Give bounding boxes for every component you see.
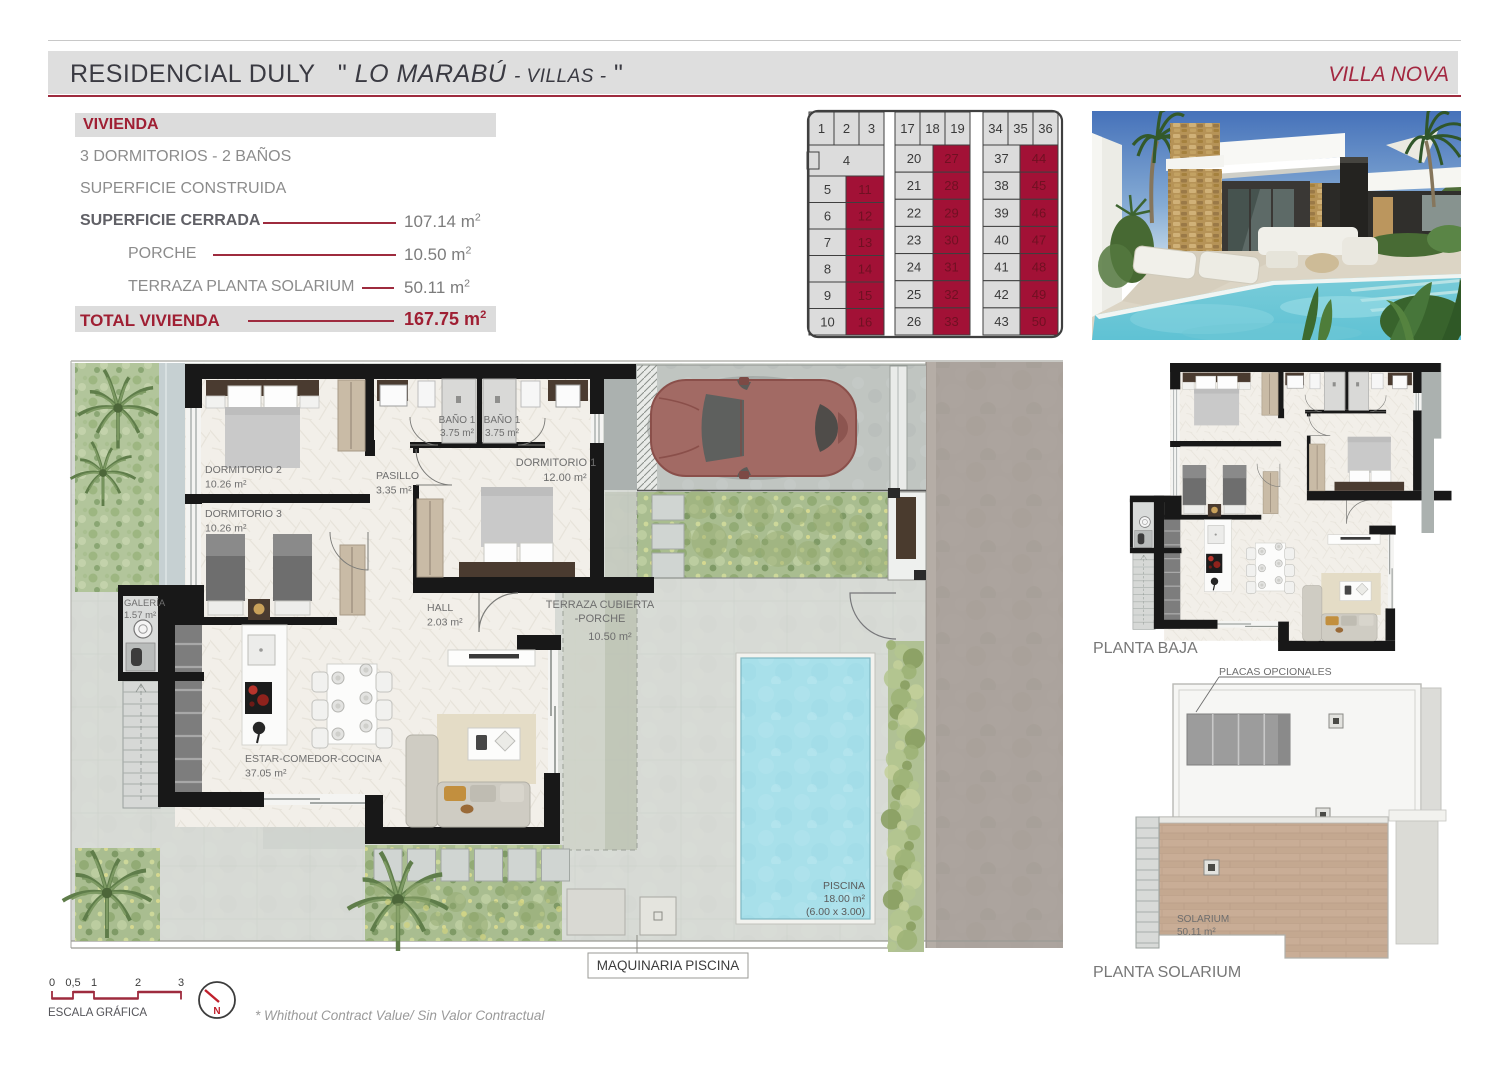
svg-text:0,5: 0,5 [65, 977, 80, 989]
svg-text:PLANTA BAJA: PLANTA BAJA [1093, 640, 1198, 657]
svg-text:3.35 m²: 3.35 m² [376, 485, 412, 497]
svg-text:DORMITORIO 2: DORMITORIO 2 [205, 464, 282, 476]
svg-text:11: 11 [858, 182, 872, 197]
svg-text:BAÑO 1: BAÑO 1 [484, 413, 521, 426]
svg-text:27: 27 [944, 151, 958, 166]
svg-text:10: 10 [820, 314, 834, 329]
svg-text:SOLARIUM: SOLARIUM [1177, 914, 1229, 925]
svg-text:10.26 m²: 10.26 m² [205, 479, 247, 491]
svg-text:12: 12 [858, 208, 872, 223]
svg-text:13: 13 [858, 235, 872, 250]
svg-text:38: 38 [994, 178, 1008, 193]
svg-text:1.57 m²: 1.57 m² [124, 610, 156, 621]
svg-text:30: 30 [944, 233, 958, 248]
svg-text:12.00 m²: 12.00 m² [543, 472, 587, 484]
svg-text:25: 25 [907, 287, 921, 302]
svg-text:34: 34 [988, 121, 1002, 136]
svg-text:MAQUINARIA PISCINA: MAQUINARIA PISCINA [597, 958, 740, 973]
svg-text:40: 40 [994, 233, 1008, 248]
svg-text:23: 23 [907, 233, 921, 248]
svg-text:0: 0 [49, 977, 55, 989]
svg-text:47: 47 [1032, 233, 1046, 248]
svg-text:45: 45 [1032, 178, 1046, 193]
svg-text:37.05 m²: 37.05 m² [245, 768, 287, 780]
svg-text:32: 32 [944, 287, 958, 302]
svg-text:43: 43 [994, 314, 1008, 329]
svg-text:PISCINA: PISCINA [823, 880, 865, 892]
svg-text:HALL: HALL [427, 602, 453, 614]
svg-text:10.26 m²: 10.26 m² [205, 523, 247, 535]
svg-text:37: 37 [994, 151, 1008, 166]
svg-text:2.03 m²: 2.03 m² [427, 617, 463, 629]
svg-text:3.75 m²: 3.75 m² [440, 428, 475, 439]
svg-text:DORMITORIO 1: DORMITORIO 1 [516, 457, 596, 469]
svg-text:15: 15 [858, 288, 872, 303]
svg-text:17: 17 [900, 121, 914, 136]
svg-text:1: 1 [91, 977, 97, 989]
svg-text:TERRAZA CUBIERTA: TERRAZA CUBIERTA [546, 599, 655, 611]
svg-text:39: 39 [994, 205, 1008, 220]
svg-text:35: 35 [1013, 121, 1027, 136]
svg-text:42: 42 [994, 287, 1008, 302]
svg-text:3: 3 [178, 977, 184, 989]
svg-text:31: 31 [944, 260, 958, 275]
svg-text:50.11 m²: 50.11 m² [1177, 927, 1216, 938]
svg-text:22: 22 [907, 205, 921, 220]
svg-text:-PORCHE: -PORCHE [575, 613, 626, 625]
svg-text:ESTAR-COMEDOR-COCINA: ESTAR-COMEDOR-COCINA [245, 753, 382, 765]
svg-text:DORMITORIO 3: DORMITORIO 3 [205, 508, 282, 520]
svg-text:5: 5 [824, 182, 831, 197]
svg-text:26: 26 [907, 314, 921, 329]
svg-text:6: 6 [824, 208, 831, 223]
svg-text:10.50 m²: 10.50 m² [588, 631, 632, 643]
svg-text:49: 49 [1032, 287, 1046, 302]
svg-text:14: 14 [858, 261, 872, 276]
svg-text:8: 8 [824, 261, 831, 276]
svg-text:2: 2 [843, 121, 850, 136]
svg-text:44: 44 [1032, 151, 1046, 166]
svg-text:7: 7 [824, 235, 831, 250]
svg-text:20: 20 [907, 151, 921, 166]
svg-text:33: 33 [944, 314, 958, 329]
svg-text:1: 1 [818, 121, 825, 136]
svg-text:3.75 m²: 3.75 m² [485, 428, 520, 439]
svg-text:ESCALA GRÁFICA: ESCALA GRÁFICA [48, 1006, 147, 1019]
svg-text:36: 36 [1038, 121, 1052, 136]
svg-text:46: 46 [1032, 205, 1046, 220]
svg-text:N: N [213, 1006, 220, 1017]
svg-text:21: 21 [907, 178, 921, 193]
svg-text:41: 41 [994, 260, 1008, 275]
svg-text:48: 48 [1032, 260, 1046, 275]
svg-text:BAÑO 1: BAÑO 1 [439, 413, 476, 426]
svg-text:* Whithout Contract Value/ Si: * Whithout Contract Value/ Sin Valor Con… [255, 1008, 545, 1023]
svg-text:50: 50 [1032, 314, 1046, 329]
svg-text:9: 9 [824, 288, 831, 303]
svg-text:PASILLO: PASILLO [376, 470, 419, 482]
svg-text:18.00 m²: 18.00 m² [824, 893, 866, 905]
svg-text:PLANTA SOLARIUM: PLANTA SOLARIUM [1093, 964, 1241, 981]
svg-text:19: 19 [950, 121, 964, 136]
svg-text:29: 29 [944, 205, 958, 220]
svg-text:16: 16 [858, 314, 872, 329]
svg-text:(6.00 x 3.00): (6.00 x 3.00) [806, 906, 865, 918]
svg-text:PLACAS OPCIONALES: PLACAS OPCIONALES [1219, 666, 1332, 678]
svg-text:28: 28 [944, 178, 958, 193]
svg-text:2: 2 [135, 977, 141, 989]
svg-text:4: 4 [843, 153, 850, 168]
svg-text:3: 3 [868, 121, 875, 136]
svg-text:24: 24 [907, 260, 921, 275]
svg-text:18: 18 [925, 121, 939, 136]
svg-text:GALERÍA: GALERÍA [124, 598, 166, 609]
